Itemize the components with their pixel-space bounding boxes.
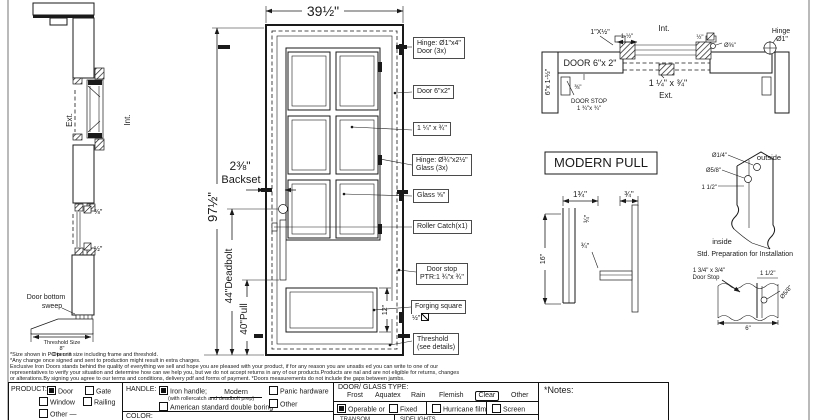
- head-dim-38: ⅜": [574, 85, 581, 91]
- handle-other-checkbox[interactable]: [269, 399, 278, 408]
- pull-dim-34b: ¾": [584, 214, 591, 223]
- install-caption: Std. Preparation for Installation: [697, 251, 793, 258]
- head-hinge-dia: Ø1": [776, 36, 788, 43]
- glass-aquatex-option[interactable]: Aquatex: [375, 392, 401, 400]
- pull-dim-16: 16": [540, 253, 547, 264]
- jamb-vertical-section: Ext. Int. ⅜" ½" Door bottom sweep Thresh…: [27, 3, 132, 358]
- head-hinge-label: Hinge: [772, 28, 790, 35]
- head-dim-114x34: 1 ¼" x ¾": [649, 78, 687, 88]
- head-door-stop-size: 1 ¾"x ¾": [577, 106, 601, 112]
- sidelights-label: SIDELIGHTS: [400, 416, 436, 420]
- head-int-label: Int.: [658, 24, 669, 33]
- callout-roller-catch: Roller Catch(x1): [413, 220, 472, 234]
- panic-checkbox[interactable]: [269, 386, 278, 395]
- pull-dim-134: 1¾": [573, 190, 587, 199]
- product-window-label: Window: [50, 400, 75, 407]
- pull-dim-34a: ¾": [624, 190, 634, 199]
- install-dia-58: Ø5/8": [706, 168, 721, 174]
- pull-bar: [632, 205, 638, 312]
- handle-cell: HANDLE: Iron handle;Modern (with rollerc…: [122, 383, 334, 420]
- glass-panes: [288, 52, 378, 238]
- int-label: Int.: [123, 114, 132, 125]
- glass-divider-1: [334, 401, 539, 402]
- product-other-label: Other: [50, 412, 68, 419]
- head-dim-1half: 1-½": [621, 33, 633, 40]
- glass-other-option[interactable]: Other: [511, 392, 529, 400]
- glass-38-dim: ⅜": [94, 209, 103, 216]
- product-gate-label: Gate: [96, 389, 111, 396]
- glass-subdivider-2: [486, 401, 487, 414]
- door-bottom-sweep-label: Door bottom: [27, 294, 66, 301]
- color-label: COLOR:: [126, 413, 153, 420]
- screen-label: Screen: [503, 407, 525, 414]
- product-other-line[interactable]: —: [69, 412, 76, 419]
- install-dia-14: Ø1/4": [712, 153, 727, 159]
- glass-frost-option[interactable]: Frost: [347, 392, 363, 400]
- doorstop-dim-6: 6": [745, 326, 750, 332]
- callout-hinge-door: Hinge: Ø1"x4" Door (3x): [413, 37, 465, 59]
- callout-hinge-door-line1: Hinge: Ø1"x4": [417, 40, 461, 49]
- operable-checkbox[interactable]: [337, 404, 346, 413]
- callout-forging-square: Forging square: [411, 300, 466, 314]
- callout-hinge-glass: Hinge: Ø¾"x2½" Glass (3x): [412, 154, 472, 176]
- order-form: PRODUCT: Door Gate Window Railing Other …: [8, 382, 669, 420]
- hurricane-checkbox[interactable]: [432, 404, 441, 413]
- handle-label: HANDLE:: [126, 386, 156, 394]
- doorstop-dia-58: Ø5/8": [780, 285, 794, 300]
- disclaimer-text: *Size shown in PO is unit size including…: [10, 352, 665, 382]
- fixed-checkbox[interactable]: [389, 404, 398, 413]
- doorstop-dim-112: 1 1/2": [760, 271, 775, 277]
- handle-other-label: Other: [280, 402, 298, 409]
- glass-subdivider-1: [426, 401, 427, 414]
- callout-leaders: [274, 47, 416, 346]
- glass-cell: DOOR/ GLASS TYPE: Frost Aquatex Rain Fle…: [333, 383, 539, 420]
- install-dim-112: 1 1/2": [702, 185, 717, 191]
- glass-12-dim: ½": [94, 245, 103, 253]
- pull-height-dim: 40"Pull: [239, 303, 250, 334]
- callout-door-size: Door 6"x2": [413, 85, 454, 99]
- backset-dim: 2⅜": [230, 159, 251, 173]
- product-other-checkbox[interactable]: [39, 409, 48, 418]
- glass-header: DOOR/ GLASS TYPE:: [338, 384, 408, 392]
- glass-divider-2: [334, 414, 539, 415]
- product-door-label: Door: [58, 389, 73, 396]
- transom-label: TRANSOM: [340, 416, 370, 420]
- forging-square-dim: ½": [412, 313, 429, 324]
- product-railing-label: Railing: [94, 400, 115, 407]
- iron-handle-checkbox[interactable]: [159, 386, 168, 395]
- bottom-row-divider: [394, 414, 395, 420]
- railing-checkbox[interactable]: [83, 397, 92, 406]
- outside-label: outside: [757, 153, 781, 162]
- modern-pull-title: MODERN PULL: [554, 155, 648, 170]
- pull-handle: [280, 220, 286, 280]
- glass-flemish-option[interactable]: Flemish: [439, 392, 464, 400]
- doorstop-detail: 1 3/4" x 3/4" Door Stop 1 1/2" Ø5/8" 6": [692, 268, 793, 332]
- head-horizontal-section: 1"X½" 1-½" Int. ½" Ø⅝" Hinge Ø1" DOOR 6"…: [542, 24, 790, 113]
- modern-pull-detail: MODERN PULL 1¾" ¾" ¾" ¾" 16": [539, 152, 657, 312]
- product-cell: PRODUCT: Door Gate Window Railing Other …: [9, 383, 122, 420]
- head-door-stop: DOOR STOP: [571, 99, 607, 105]
- ext-label: Ext.: [65, 113, 74, 127]
- door-height-dim: 97½": [205, 192, 220, 222]
- door-bottom-sweep-label2: sweep: [42, 303, 62, 310]
- hurricane-label: Hurricane film: [443, 407, 486, 414]
- panel-height-dim: 12": [382, 304, 389, 315]
- callout-glass-thickness: Glass ⅝": [413, 189, 449, 203]
- deadbolt: [279, 205, 288, 214]
- door-elevation: 39½": [204, 1, 416, 355]
- forging-square-icon: [421, 313, 429, 321]
- pull-bracket: [600, 271, 632, 280]
- head-dia-58: Ø⅝": [724, 43, 736, 49]
- inside-label: inside: [712, 237, 732, 246]
- pull-dim-34c: ¾": [581, 243, 590, 250]
- operable-label: Operable or: [348, 407, 385, 414]
- fixed-label: Fixed: [400, 407, 417, 414]
- window-checkbox[interactable]: [39, 397, 48, 406]
- deadbolt-height-dim: 44"Deadbolt: [224, 248, 235, 303]
- head-door-6x2: DOOR 6"x 2": [564, 58, 617, 68]
- notes-cell[interactable]: *Notes:: [538, 383, 669, 420]
- door-checkbox[interactable]: [47, 386, 56, 395]
- installation-detail: Ø1/4" Ø5/8" 1 1/2" outside inside Std. P…: [697, 152, 793, 258]
- door-width-dim: 39½": [307, 3, 339, 19]
- callout-door-stop: Door stop PTR:1 ¾"x ¾": [416, 263, 468, 285]
- callout-muntin-size: 1 ¼" x ¾": [413, 122, 451, 136]
- head-ext-label: Ext.: [659, 91, 673, 100]
- glass-rain-option[interactable]: Rain: [411, 392, 425, 400]
- product-label: PRODUCT:: [11, 386, 47, 394]
- callout-hinge-door-line2: Door (3x): [417, 48, 461, 57]
- drawing-sheet: Ext. Int. ⅜" ½" Door bottom sweep Thresh…: [0, 0, 826, 420]
- doorstop-label-2: Door Stop: [692, 275, 720, 281]
- gate-checkbox[interactable]: [85, 386, 94, 395]
- glass-symbol-icon: [84, 206, 91, 250]
- glass-clear-option[interactable]: Clear: [475, 391, 499, 401]
- handle-divider: [123, 411, 334, 412]
- head-dim-half: ½": [696, 34, 703, 41]
- backset-word: Backset: [221, 174, 260, 186]
- head-dim-1xhalf: 1"X½": [590, 28, 610, 36]
- notes-label: *Notes:: [544, 386, 574, 394]
- panic-label: Panic hardware: [280, 389, 329, 396]
- asdb-checkbox[interactable]: [159, 402, 168, 411]
- screen-checkbox[interactable]: [492, 404, 501, 413]
- head-jamb-size: 6"x 1-½": [544, 68, 552, 95]
- doorstop-label-1: 1 3/4" x 3/4": [693, 268, 725, 274]
